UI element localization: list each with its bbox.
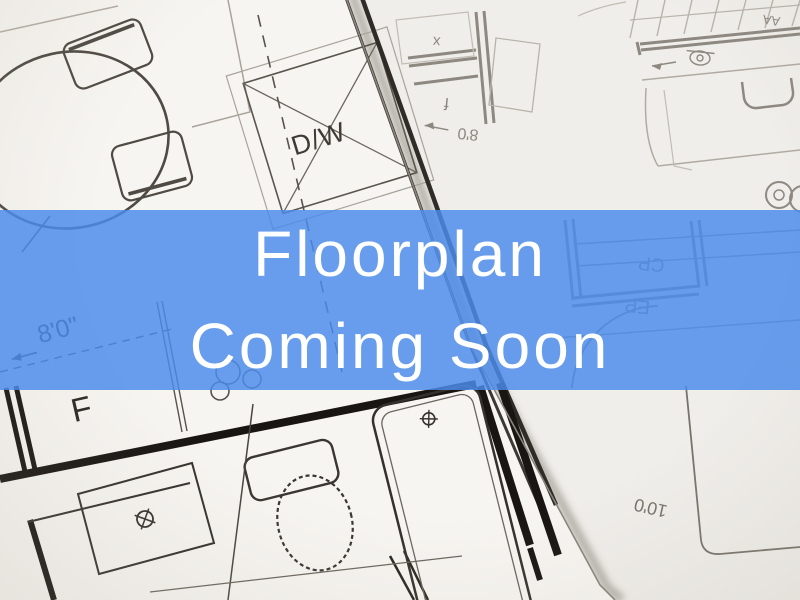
svg-text:8'0: 8'0 [457, 124, 480, 143]
label-aa: AA [761, 12, 781, 29]
banner-title-line1: Floorplan [253, 208, 547, 300]
floorplan-coming-soon-graphic: AA [0, 0, 800, 600]
coming-soon-banner: Floorplan Coming Soon [0, 210, 800, 390]
banner-title-line2: Coming Soon [190, 300, 611, 392]
